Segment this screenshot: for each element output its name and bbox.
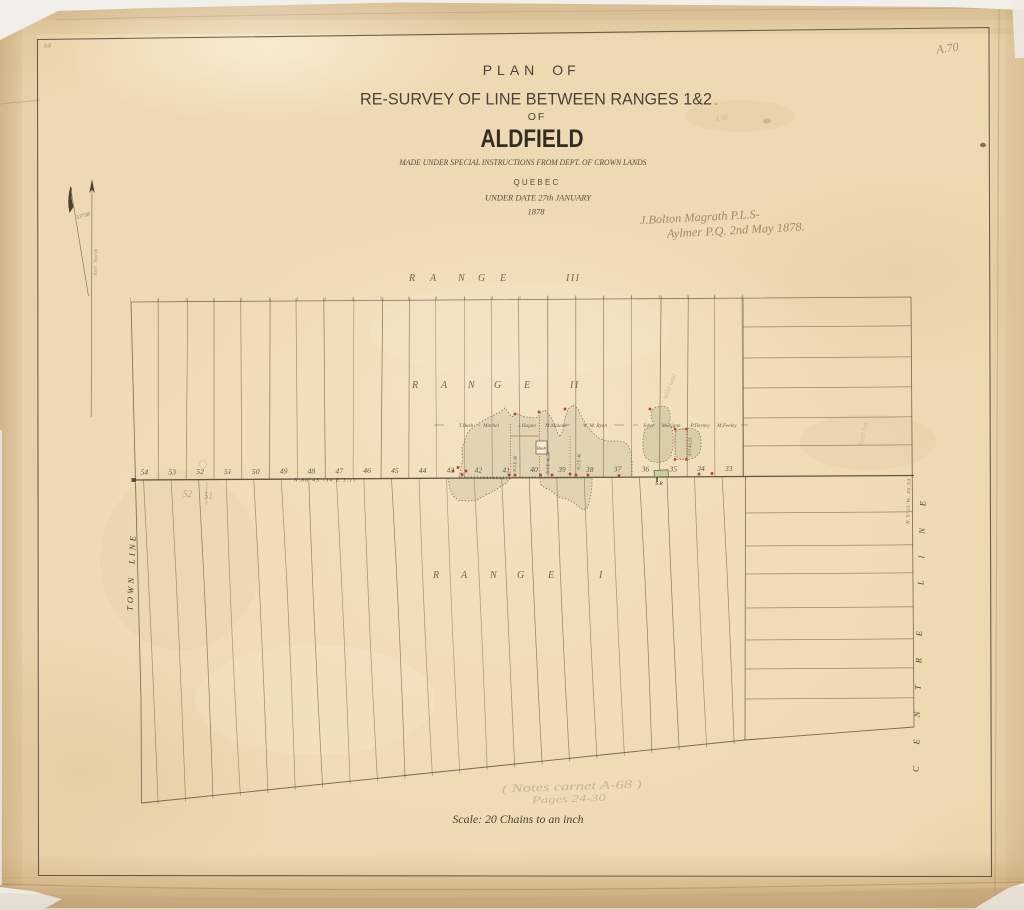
svg-text:13°30': 13°30' xyxy=(76,210,92,220)
svg-text:RANGE: RANGE xyxy=(408,273,506,284)
svg-text:40: 40 xyxy=(530,465,538,474)
svg-text:37: 37 xyxy=(613,465,623,474)
svg-text:Astr. North: Astr. North xyxy=(93,248,99,277)
svg-text:ALDFIELD: ALDFIELD xyxy=(481,125,584,153)
svg-text:N.5°15'W. 46.50: N.5°15'W. 46.50 xyxy=(904,478,912,525)
svg-text:48: 48 xyxy=(308,467,316,476)
svg-text:PLAN: PLAN xyxy=(483,62,540,78)
svg-text:1878: 1878 xyxy=(528,207,546,217)
svg-text:52: 52 xyxy=(196,467,204,476)
svg-text:44: 44 xyxy=(419,466,427,475)
svg-text:RANGE: RANGE xyxy=(411,380,530,391)
svg-text:38: 38 xyxy=(585,465,594,474)
svg-text:John: John xyxy=(643,423,653,429)
svg-text:51: 51 xyxy=(204,491,213,501)
svg-text:Mitchel: Mitchel xyxy=(482,423,499,429)
svg-text:36: 36 xyxy=(641,465,650,474)
svg-text:A.70: A.70 xyxy=(934,40,959,57)
svg-text:Wild land: Wild land xyxy=(661,372,678,401)
svg-text:41: 41 xyxy=(502,465,510,474)
svg-text:I: I xyxy=(598,570,603,581)
svg-text:53: 53 xyxy=(168,467,176,476)
svg-text:b4: b4 xyxy=(44,42,52,50)
svg-text:54: 54 xyxy=(141,467,149,476)
svg-text:QUEBEC: QUEBEC xyxy=(514,178,561,187)
svg-text:P.Tierney: P.Tierney xyxy=(689,423,710,429)
svg-text:50: 50 xyxy=(252,467,260,476)
svg-text:T.Bush: T.Bush xyxy=(459,423,474,429)
svg-text:45: 45 xyxy=(391,466,399,475)
svg-text:43: 43 xyxy=(447,466,455,475)
svg-text:N.2.E 46: N.2.E 46 xyxy=(576,453,582,471)
svg-text:Mulligan: Mulligan xyxy=(660,423,680,429)
svg-text:UNDER DATE 27th JANUARY: UNDER DATE 27th JANUARY xyxy=(485,193,592,203)
svg-text:S.R: S.R xyxy=(655,481,663,487)
svg-text:33: 33 xyxy=(724,464,733,473)
svg-text:N.3.E 46.50: N.3.E 46.50 xyxy=(545,451,551,475)
svg-text:III: III xyxy=(565,273,581,284)
svg-text:MADE UNDER SPECIAL INSTRUCTION: MADE UNDER SPECIAL INSTRUCTIONS FROM DEP… xyxy=(399,158,647,167)
svg-text:RE-SURVEY OF LINE BETWEEN RANG: RE-SURVEY OF LINE BETWEEN RANGES 1&2 xyxy=(360,91,712,109)
svg-text:N.86°45'-34 E 3.17: N.86°45'-34 E 3.17 xyxy=(293,479,357,484)
svg-text:49: 49 xyxy=(280,467,288,476)
svg-text:S.O 46.25: S.O 46.25 xyxy=(687,437,693,456)
svg-text:J.Hagan: J.Hagan xyxy=(518,423,536,429)
svg-text:II: II xyxy=(569,380,580,391)
svg-text:52: 52 xyxy=(183,489,193,499)
svg-text:34: 34 xyxy=(696,464,705,473)
svg-text:42: 42 xyxy=(475,466,483,475)
svg-text:M.Malone: M.Malone xyxy=(544,423,567,429)
svg-text:M.Feeley: M.Feeley xyxy=(716,423,737,429)
svg-text:51: 51 xyxy=(224,467,232,476)
svg-text:47: 47 xyxy=(335,466,344,475)
svg-text:35: 35 xyxy=(668,464,677,473)
svg-text:N.3.E 46: N.3.E 46 xyxy=(512,455,518,473)
svg-text:46: 46 xyxy=(363,466,371,475)
svg-text:W. M. Ryan: W. M. Ryan xyxy=(583,423,607,429)
svg-text:Pages 24-30: Pages 24-30 xyxy=(530,793,606,807)
svg-text:OF: OF xyxy=(528,111,547,123)
svg-text:Scale: 20 Chains to an inch: Scale: 20 Chains to an inch xyxy=(453,814,584,826)
svg-text:Bush: Bush xyxy=(537,446,547,451)
svg-text:OF: OF xyxy=(552,62,579,78)
svg-text:39: 39 xyxy=(557,465,566,474)
